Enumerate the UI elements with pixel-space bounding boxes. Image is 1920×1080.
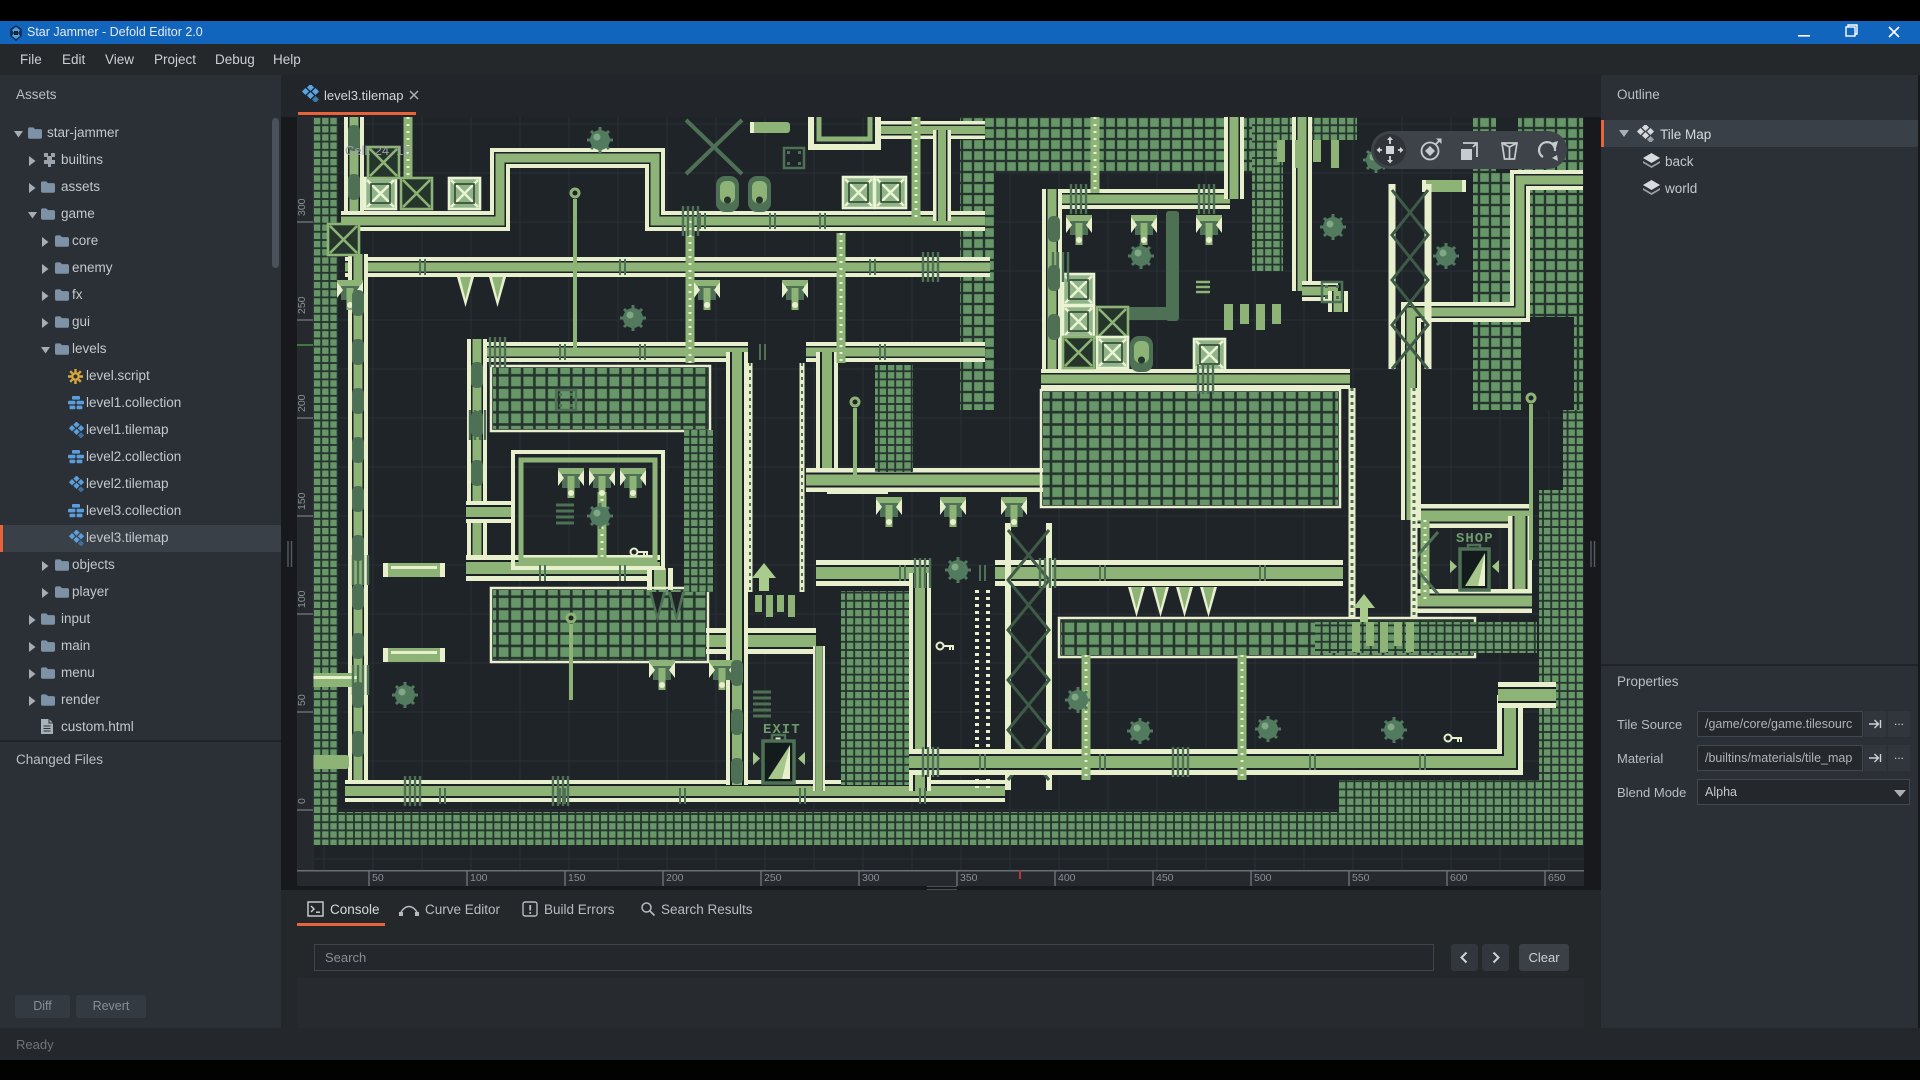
svg-text:250: 250 [297,296,308,314]
svg-text:350: 350 [960,872,978,884]
svg-text:50: 50 [297,694,308,706]
svg-text:450: 450 [1156,872,1174,884]
svg-text:0: 0 [297,798,308,804]
svg-text:Cell: 24, 15: Cell: 24, 15 [345,143,411,158]
svg-text:600: 600 [1450,872,1468,884]
svg-text:300: 300 [297,198,308,216]
svg-text:150: 150 [297,492,308,510]
svg-text:550: 550 [1352,872,1370,884]
svg-text:400: 400 [1058,872,1076,884]
svg-text:200: 200 [666,872,684,884]
svg-text:50: 50 [372,872,384,884]
svg-text:100: 100 [470,872,488,884]
svg-text:650: 650 [1548,872,1566,884]
svg-text:150: 150 [568,872,586,884]
svg-text:200: 200 [297,394,308,412]
svg-text:300: 300 [862,872,880,884]
svg-text:500: 500 [1254,872,1272,884]
svg-text:100: 100 [297,590,308,608]
svg-text:250: 250 [764,872,782,884]
